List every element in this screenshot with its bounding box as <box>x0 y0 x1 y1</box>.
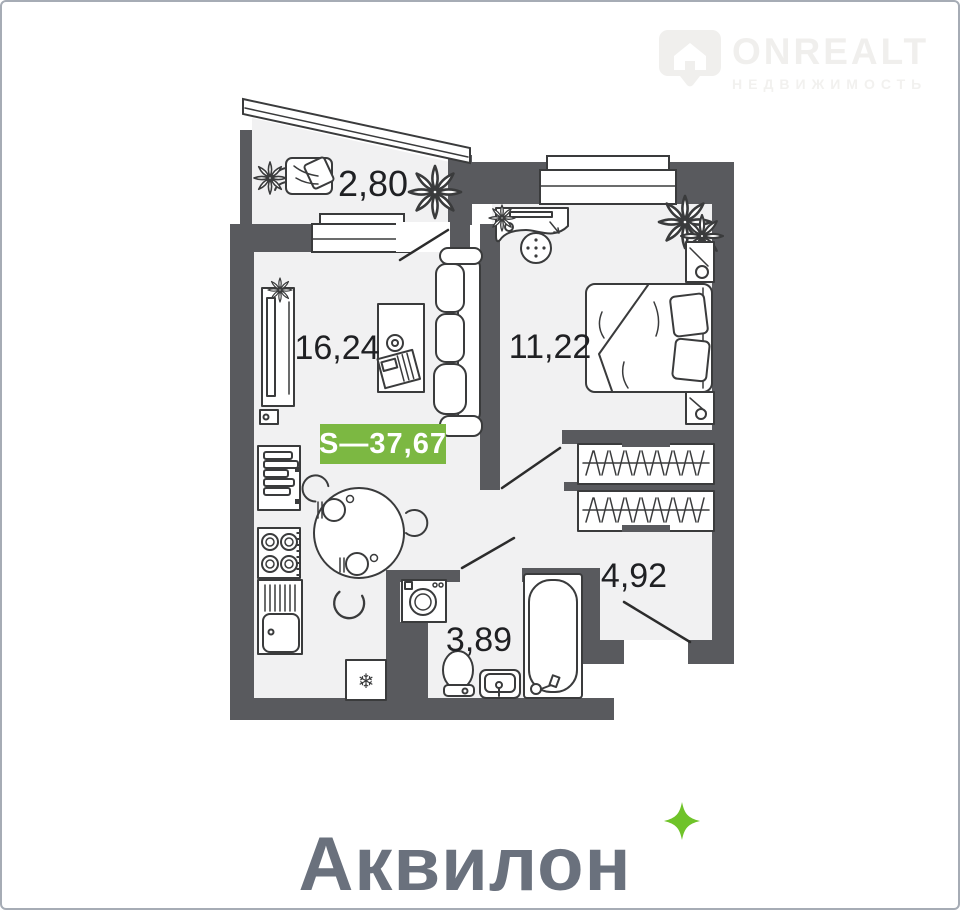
plant-icon <box>254 162 286 194</box>
nightstand-icon <box>686 242 714 282</box>
onrealt-logo: ONREALT НЕДВИЖИМОСТЬ <box>659 30 929 92</box>
balcony-door-opening <box>396 222 450 252</box>
room-area-label-balcony: 2,80 <box>338 163 408 204</box>
plant-icon <box>268 278 292 302</box>
floor-plan-page: ❄ <box>0 0 960 910</box>
room-area-label-bedroom: 11,22 <box>509 328 592 366</box>
entrance-opening <box>624 640 688 666</box>
sofa-icon <box>434 248 482 436</box>
bathtub-icon <box>524 574 582 698</box>
plant-icon <box>409 166 461 218</box>
total-area-badge: S—37,67 <box>319 424 447 464</box>
developer-brand-name: Аквилон <box>299 822 632 907</box>
coffee-table-icon <box>377 304 424 392</box>
wardrobe-rack-icon <box>578 440 714 484</box>
sparkle-icon <box>664 802 700 840</box>
bed-icon <box>586 284 712 392</box>
room-area-label-hallway: 4,92 <box>601 557 667 595</box>
washing-machine-icon <box>402 580 446 622</box>
nightstand-icon <box>686 392 714 424</box>
sink-icon <box>480 670 520 698</box>
tv-unit-icon <box>260 288 294 424</box>
developer-logo: Аквилон <box>299 802 700 907</box>
kitchen-sink-icon <box>258 580 302 654</box>
watermark-tagline: НЕДВИЖИМОСТЬ <box>732 76 927 92</box>
plant-icon <box>489 205 515 231</box>
desk-chair-icon <box>521 233 551 263</box>
room-area-label-bathroom: 3,89 <box>446 621 512 659</box>
kitchen-cabinet-icon <box>258 446 300 510</box>
wardrobe-rack-icon <box>578 491 714 532</box>
snowflake-icon: ❄ <box>358 669 375 693</box>
stove-icon <box>258 528 300 578</box>
bedroom-window <box>540 156 676 204</box>
room-area-label-living: 16,24 <box>294 329 379 367</box>
living-room-window <box>312 214 410 252</box>
watermark-brand: ONREALT <box>732 31 929 72</box>
fridge-icon: ❄ <box>346 660 386 700</box>
total-area-value: S—37,67 <box>319 428 447 460</box>
dining-table-icon <box>314 488 404 578</box>
